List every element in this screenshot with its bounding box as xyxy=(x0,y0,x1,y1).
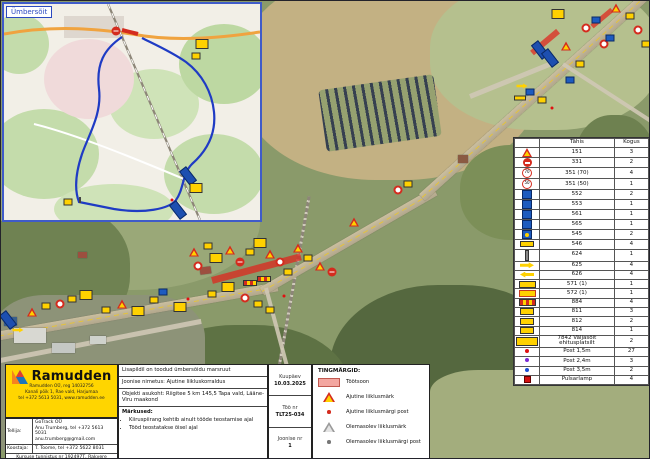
sign-quantity: 27 xyxy=(614,347,648,356)
legend-item: Ajutine liiklusmärk xyxy=(318,392,424,402)
sign-table-header-code: Tähis xyxy=(540,139,615,148)
sign-table-header-icon xyxy=(515,139,540,148)
blue-sign-icon xyxy=(522,220,532,229)
sign-quantity: 4 xyxy=(614,261,648,270)
company-contact-line: tel +372 5613 5031, www.ramudden.ee xyxy=(6,396,117,402)
sign-table-row: 8122 xyxy=(515,317,649,326)
sign-code: 625 xyxy=(540,261,615,270)
map-sign-tri xyxy=(117,300,127,309)
sign-table-header-qty: Kogus xyxy=(614,139,648,148)
temp-post-legend-icon xyxy=(327,410,331,414)
sign-quantity: 4 xyxy=(614,240,648,249)
post-sign-icon xyxy=(525,250,530,261)
ysm-sign-icon xyxy=(520,308,534,315)
legend-items: TöötsoonAjutine liiklusmärkAjutine liikl… xyxy=(318,377,424,447)
temp-sign-legend-icon xyxy=(323,392,335,402)
inset-title: Ümbersõit xyxy=(6,6,52,18)
drawing-info-box: Lisapildil on toodud ümbersõidu marsruut… xyxy=(118,364,268,459)
sign-quantity: 4 xyxy=(614,298,648,307)
inset-title-label: Ümbersõit xyxy=(11,8,47,16)
map-sign-ybar xyxy=(514,96,526,101)
sign-quantity: 1 xyxy=(614,210,648,220)
blue-sign-icon xyxy=(522,190,532,199)
map-sign-yrect xyxy=(576,61,585,68)
note-item: Kiiruspiirang kehtib ainult tööde teosta… xyxy=(129,417,264,424)
map-sign-yrect xyxy=(404,181,413,188)
legend-item-label: Ajutine liiklusmärgi post xyxy=(346,409,409,415)
existing-post-legend-icon xyxy=(327,440,331,444)
map-sign-ybig xyxy=(132,306,145,316)
sign-quantity: 4 xyxy=(614,168,648,179)
sign-quantity: 2 xyxy=(614,230,648,240)
sign-table-row: 5464 xyxy=(515,240,649,249)
sign-table-row: 5522 xyxy=(515,190,649,200)
ysm-sign-icon xyxy=(520,327,534,334)
legend-item: Ajutine liiklusmärgi post xyxy=(318,407,424,417)
sign-table-row: 50351 (50)1 xyxy=(515,179,649,190)
map-sign-yrect xyxy=(266,307,275,314)
sign-quantity: 3 xyxy=(614,357,648,366)
map-sign-circ xyxy=(394,186,403,195)
map-sign-yrect xyxy=(626,13,635,20)
sign-quantity: 4 xyxy=(614,270,648,279)
map-sign-tri xyxy=(189,248,199,257)
client-email: anu.trumberg@gmail.com xyxy=(35,437,115,443)
company-info-table: Tellija: GoTrack OÜ Anu Trumberg, tel +3… xyxy=(5,418,118,459)
sign-code: 561 xyxy=(540,210,615,220)
author-label: Koostaja: xyxy=(6,445,33,453)
yplate-sign-icon xyxy=(519,281,536,288)
yplate2-sign-icon xyxy=(519,290,536,297)
map-sign-ybig xyxy=(254,238,267,248)
sign-table-row: Post 1,5m27 xyxy=(515,347,649,356)
sign-code: Post 3,5m xyxy=(540,366,615,375)
map-sign-tri xyxy=(265,250,275,259)
sign-table-row: 8113 xyxy=(515,308,649,317)
sign-table-row: 571 (1)1 xyxy=(515,280,649,289)
legend-item: Olemasolev liiklusmärk xyxy=(318,422,424,432)
certificate-number: Kursuse tunnistus nr 192497T, Rakvere xyxy=(6,454,117,459)
sign-quantity: 1 xyxy=(614,249,648,261)
ywide-sign-icon xyxy=(516,337,538,346)
sign-quantity: 1 xyxy=(614,179,648,190)
drawing-meta-box: Kuupäev 10.03.2025 Töö nr TLT25-034 Joon… xyxy=(268,364,312,459)
work-number-value: TLT25-034 xyxy=(269,412,311,418)
sign-table-body: 1513331270351 (70)450351 (50)15522553156… xyxy=(515,148,649,385)
sign-code: 812 xyxy=(540,317,615,326)
sign-table-row: 6241 xyxy=(515,249,649,261)
date-label: Kuupäev xyxy=(269,374,311,380)
sign-code: Post 1,5m xyxy=(540,347,615,356)
company-logo-box: Ramudden Ramudden OÜ, reg 14032756 Kanal… xyxy=(5,364,118,418)
sign-table-row: 5531 xyxy=(515,200,649,210)
tri-sign-icon xyxy=(522,148,532,157)
sign-quantity: 1 xyxy=(614,200,648,210)
map-sign-yrect xyxy=(538,97,547,104)
yb-sign-icon xyxy=(522,230,532,239)
sign-code: 884 xyxy=(540,298,615,307)
map-sign-circ xyxy=(241,294,250,303)
map-sign-ybig xyxy=(80,290,93,300)
sign-table-row: 5452 xyxy=(515,230,649,240)
map-sign-circ xyxy=(582,24,591,33)
map-legend: TINGMÄRGID: TöötsoonAjutine liiklusmärkA… xyxy=(312,364,430,459)
map-sign-noentry xyxy=(112,27,121,36)
map-sign-bboard xyxy=(0,310,17,330)
map-sign-barrier xyxy=(243,280,257,286)
map-sign-yrect xyxy=(42,303,51,310)
map-sign-noentry xyxy=(328,268,337,277)
company-name: Ramudden xyxy=(32,369,112,384)
work-number-label: Töö nr xyxy=(269,405,311,411)
inset-note: Lisapildil on toodud ümbersõidu marsruut xyxy=(119,365,267,377)
sign-code: 552 xyxy=(540,190,615,200)
map-sign-brect xyxy=(526,89,535,96)
sign-table-row: 6254 xyxy=(515,261,649,270)
sign-table-row: 572 (1)1 xyxy=(515,289,649,298)
sign-quantity: 2 xyxy=(614,317,648,326)
sign-quantity: 2 xyxy=(614,335,648,347)
sign-code: 553 xyxy=(540,200,615,210)
drawing-name-value: Ajutine liikluskorraldus xyxy=(167,379,226,385)
map-sign-yrect xyxy=(102,307,111,314)
map-sign-noentry xyxy=(236,258,245,267)
existing-sign-legend-icon xyxy=(323,422,335,432)
detour-inset-map[interactable]: Ümbersõit xyxy=(2,2,262,222)
sign-code: 546 xyxy=(540,240,615,249)
map-sign-ybig xyxy=(222,282,235,292)
map-sign-circ xyxy=(56,300,65,309)
sign-code: Post 2,4m xyxy=(540,357,615,366)
location-label: Objekti asukoht: xyxy=(122,391,164,397)
notes-title: Märkused: xyxy=(122,409,264,416)
map-sign-dotr xyxy=(283,295,286,298)
blue-sign-icon xyxy=(522,200,532,209)
legend-item-label: Olemasolev liiklusmärgi post xyxy=(346,439,421,445)
arr-l-sign-icon xyxy=(520,272,534,278)
sign-table-row: 6264 xyxy=(515,270,649,279)
sheet-number-label: Joonise nr xyxy=(269,436,311,442)
map-sign-yrect xyxy=(208,291,217,298)
map-sign-bboard xyxy=(169,200,187,220)
sign-table-row: 7842 Väljasõit ehitusplatsilt2 xyxy=(515,335,649,347)
legend-item-label: Ajutine liiklusmärk xyxy=(346,394,394,400)
dot-blue-sign-icon xyxy=(525,368,529,372)
sign-table-row: 5651 xyxy=(515,220,649,230)
sign-code: 7842 Väljasõit ehitusplatsilt xyxy=(540,335,615,347)
map-sign-tri xyxy=(561,42,571,51)
map-sign-circ xyxy=(276,258,285,267)
legend-item-label: Töötsoon xyxy=(346,379,369,385)
map-sign-yrect xyxy=(246,249,255,256)
map-sign-circ xyxy=(634,26,643,35)
drawing-name-label: Joonise nimetus: xyxy=(122,379,165,385)
sign-code: 624 xyxy=(540,249,615,261)
sign-code: Pulsarlamp xyxy=(540,375,615,384)
map-sign-brect xyxy=(606,35,615,42)
map-sign-barrier xyxy=(257,276,271,282)
sign-table-row: 3312 xyxy=(515,158,649,168)
legend-item-label: Olemasolev liiklusmärk xyxy=(346,424,406,430)
sign-quantity: 2 xyxy=(614,158,648,168)
map-sign-tri xyxy=(293,244,303,253)
sign-table-row: Post 2,4m3 xyxy=(515,357,649,366)
sign-quantity: 3 xyxy=(614,148,648,158)
map-sign-ybig xyxy=(174,302,187,312)
arr-r-sign-icon xyxy=(520,262,534,268)
map-sign-yrect xyxy=(68,296,77,303)
map-sign-ybig xyxy=(196,39,209,49)
map-sign-yrect xyxy=(192,53,201,60)
legend-title: TINGMÄRGID: xyxy=(318,368,424,374)
sq-red-sign-icon xyxy=(524,376,531,383)
s50-sign-icon: 50 xyxy=(522,179,532,189)
map-sign-post xyxy=(79,197,81,203)
sign-quantity: 1 xyxy=(614,289,648,298)
note-item: Tööd teostatakse öisel ajal xyxy=(129,425,264,432)
map-sign-brect xyxy=(566,77,575,84)
sign-table-row: 8844 xyxy=(515,298,649,307)
sign-code: 331 xyxy=(540,158,615,168)
ysm-sign-icon xyxy=(520,318,534,325)
sign-quantity: 1 xyxy=(614,220,648,230)
map-sign-yrect xyxy=(204,243,213,250)
sign-quantity: 2 xyxy=(614,366,648,375)
sign-quantity: 4 xyxy=(614,375,648,384)
date-value: 10.03.2025 xyxy=(269,381,311,387)
inset-sign-markers xyxy=(4,4,260,220)
map-sign-yrect xyxy=(64,199,73,206)
map-sign-arr xyxy=(13,328,24,333)
map-sign-tri xyxy=(315,262,325,271)
map-sign-brect xyxy=(159,289,168,296)
sign-quantity: 1 xyxy=(614,326,648,335)
map-sign-yrect xyxy=(284,269,293,276)
sign-code: 572 (1) xyxy=(540,289,615,298)
map-sign-yrect xyxy=(150,297,159,304)
map-sign-ybig xyxy=(552,9,565,19)
sign-code: 351 (70) xyxy=(540,168,615,179)
map-sign-dotr xyxy=(187,298,190,301)
dot-purple-sign-icon xyxy=(525,358,529,362)
s70-sign-icon: 70 xyxy=(522,168,532,178)
sign-code: 151 xyxy=(540,148,615,158)
map-sign-tri xyxy=(225,246,235,255)
dot-red-sign-icon xyxy=(525,349,529,353)
map-sign-bboard xyxy=(541,48,559,68)
sign-table-row: 70351 (70)4 xyxy=(515,168,649,179)
map-sign-ybig xyxy=(190,183,203,193)
map-sign-brect xyxy=(592,17,601,24)
map-sign-circ xyxy=(194,262,203,271)
sign-quantity: 1 xyxy=(614,280,648,289)
blue-sign-icon xyxy=(522,210,532,219)
stripe-sign-icon xyxy=(519,299,536,306)
map-sign-yrect xyxy=(642,41,650,48)
sign-code: 811 xyxy=(540,308,615,317)
sign-code: 626 xyxy=(540,270,615,279)
sign-quantity-table[interactable]: Tähis Kogus 1513331270351 (70)450351 (50… xyxy=(513,137,650,386)
sign-quantity: 2 xyxy=(614,190,648,200)
legend-item: Olemasolev liiklusmärgi post xyxy=(318,437,424,447)
map-sign-dotr xyxy=(551,107,554,110)
sign-code: 545 xyxy=(540,230,615,240)
sign-table-row: 5611 xyxy=(515,210,649,220)
sign-code: 351 (50) xyxy=(540,179,615,190)
map-sign-tri xyxy=(27,308,37,317)
ramudden-logo-icon xyxy=(12,370,28,384)
author-value: T. Toome, tel +372 5622 8031 xyxy=(33,445,117,453)
workzone-legend-icon xyxy=(318,378,340,387)
map-sign-ybig xyxy=(210,253,223,263)
sign-quantity: 3 xyxy=(614,308,648,317)
map-sign-yrect xyxy=(304,255,313,262)
sign-code: 565 xyxy=(540,220,615,230)
map-sign-tri xyxy=(611,4,621,13)
map-sign-yrect xyxy=(254,301,263,308)
ta-plan-drawing: Ümbersõit Tähis Kogus 1513331270351 (70)… xyxy=(0,0,650,459)
noentry-sign-icon xyxy=(523,158,532,167)
sign-table-row: 1513 xyxy=(515,148,649,158)
ybar-sign-icon xyxy=(520,241,534,247)
map-sign-tri xyxy=(349,218,359,227)
sign-code: 571 (1) xyxy=(540,280,615,289)
sign-table-row: Pulsarlamp4 xyxy=(515,375,649,384)
client-contact: Anu Trumberg, tel +372 5613 5031 xyxy=(35,426,115,437)
client-label: Tellija: xyxy=(6,419,33,444)
legend-item: Töötsoon xyxy=(318,377,424,387)
sheet-number-value: 1 xyxy=(269,443,311,449)
sign-table-row: Post 3,5m2 xyxy=(515,366,649,375)
